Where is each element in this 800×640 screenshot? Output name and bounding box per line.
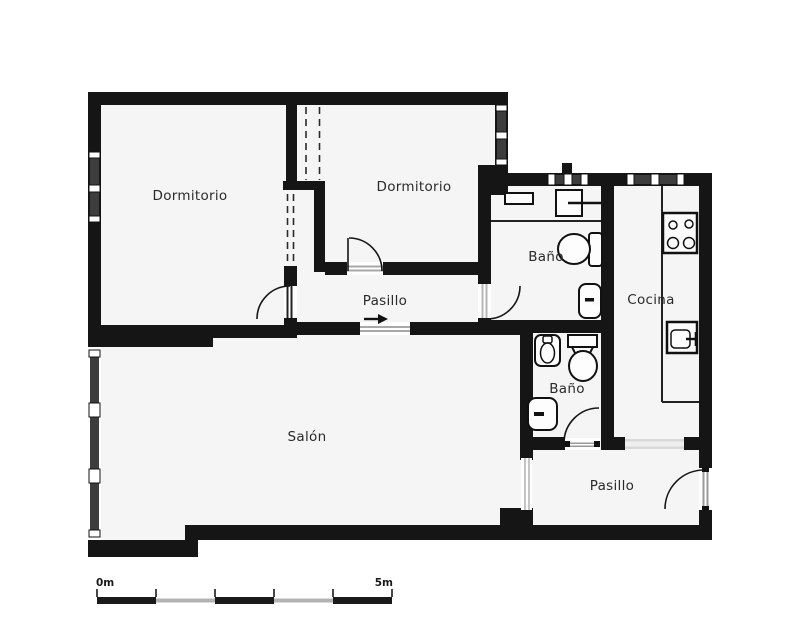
label-dormitorio-2: Dormitorio (377, 179, 452, 195)
doorway-bano-2 (565, 438, 600, 450)
scale-ticks (96, 589, 393, 597)
label-cocina: Cocina (627, 292, 675, 308)
floor-plan-page: Dormitorio Dormitorio Baño Cocina Pasill… (0, 0, 800, 640)
scale-start-label: 0m (96, 577, 114, 589)
label-salon: Salón (288, 429, 327, 445)
window-salon (89, 350, 100, 537)
label-pasillo-2: Pasillo (590, 478, 634, 494)
doorway-dormitorio-1 (284, 286, 297, 318)
kitchen-sink-icon (667, 322, 697, 353)
label-dormitorio-1: Dormitorio (153, 188, 228, 204)
opening-cocina (625, 439, 684, 449)
doorway-dormitorio-2 (347, 262, 383, 275)
scale-end-label: 5m (375, 577, 393, 589)
doorway-entrada (699, 468, 712, 510)
window-dormitorio-2 (496, 105, 507, 165)
label-pasillo-1: Pasillo (363, 293, 407, 309)
label-bano-2: Baño (549, 381, 585, 397)
scale-bar: 0m 5m (96, 577, 393, 604)
washbasin-icon (528, 398, 557, 430)
washbasin-icon (579, 284, 601, 318)
toilet-icon (568, 335, 597, 381)
floor-plan-drawing: Dormitorio Dormitorio Baño Cocina Pasill… (0, 0, 800, 640)
shelf-icon (505, 193, 533, 204)
stove-icon (663, 213, 697, 253)
toilet-icon (558, 233, 602, 266)
bidet-icon (535, 335, 560, 366)
label-bano-1: Baño (528, 249, 564, 265)
floor-dormitorio-1 (101, 105, 297, 325)
opening-salon-pasillo-2 (521, 458, 532, 510)
window-bano-1 (548, 174, 588, 185)
doorway-bano-1 (478, 284, 491, 318)
window-dormitorio-1 (89, 152, 100, 222)
window-cocina (627, 174, 684, 185)
opening-pasillo-salon (360, 322, 410, 335)
